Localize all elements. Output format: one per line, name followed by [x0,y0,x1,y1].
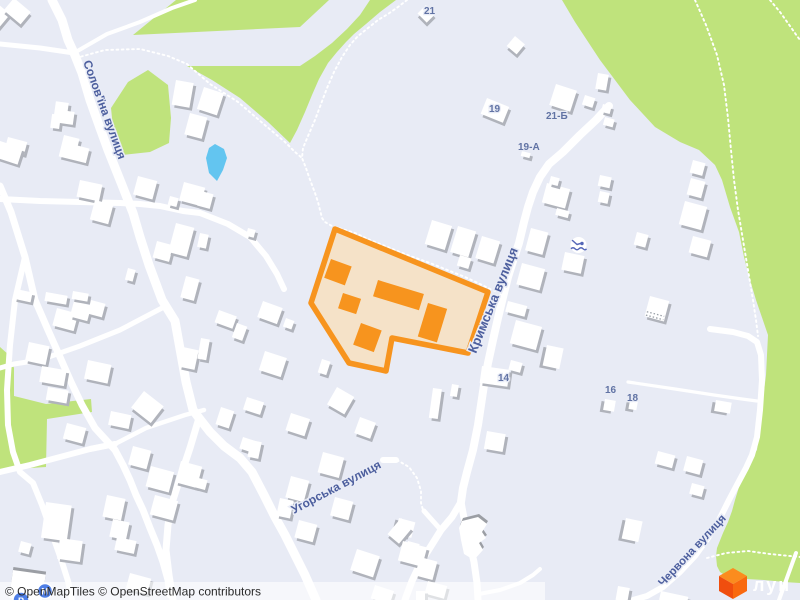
svg-text:лун: лун [753,575,791,595]
svg-text:16: 16 [605,385,617,396]
svg-text:21-Б: 21-Б [546,111,568,122]
svg-text:© OpenMapTiles © OpenStreetMap: © OpenMapTiles © OpenStreetMap contribut… [5,585,261,599]
svg-text:19-А: 19-А [518,142,540,153]
svg-text:18: 18 [627,393,639,404]
svg-text:19: 19 [489,104,501,115]
svg-text:14: 14 [498,373,510,384]
svg-text:21: 21 [424,6,436,17]
